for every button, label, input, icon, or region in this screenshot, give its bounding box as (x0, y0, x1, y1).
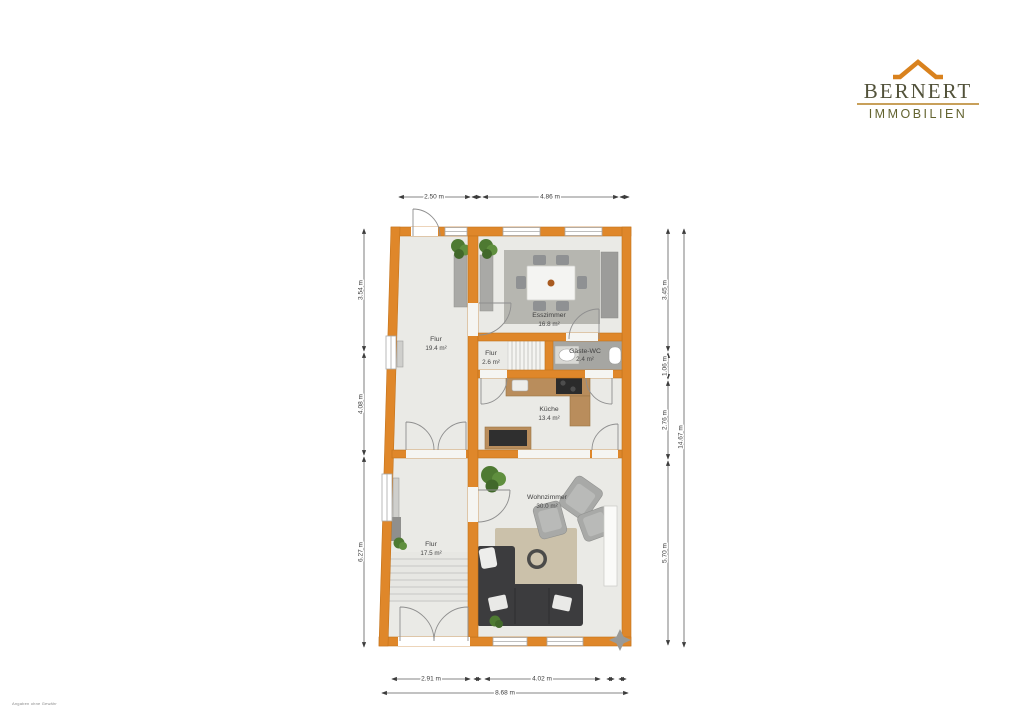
chair (556, 255, 569, 265)
burner (570, 386, 575, 391)
radiator (393, 478, 399, 518)
door-gap (585, 370, 613, 378)
radiator (397, 341, 403, 367)
dimension-label: 3.45 m (662, 280, 669, 300)
island-top (489, 430, 527, 446)
stairs-box (508, 341, 545, 371)
dimension-label: 3.54 m (358, 280, 365, 300)
room-area: 19.4 m² (425, 345, 446, 352)
room-name: Gäste-WC (569, 348, 601, 355)
dimension-label: 2.91 m (421, 676, 441, 683)
chair (556, 301, 569, 311)
chair (577, 276, 587, 289)
room-area: 17.5 m² (420, 550, 441, 557)
sideboard (601, 252, 618, 318)
room-name: Flur (425, 541, 437, 548)
dimension-label: 4.02 m (532, 676, 552, 683)
logo-roof-icon (855, 54, 981, 80)
dimension-label: 2.50 m (424, 194, 444, 201)
dimension-label: 5.70 m (662, 543, 669, 563)
room-name: Esszimmer (532, 312, 566, 319)
page: BERNERT IMMOBILIEN Angaben ohne Gewähr (0, 0, 1024, 724)
door-gap (566, 333, 598, 341)
room-name: Flur (430, 336, 442, 343)
room-name: Flur (485, 350, 497, 357)
room-area: 16.8 m² (538, 321, 559, 328)
dimension-label: 4.08 m (358, 394, 365, 414)
logo: BERNERT IMMOBILIEN (854, 54, 982, 121)
bench (604, 506, 617, 586)
door-gap (468, 303, 478, 336)
chair (533, 255, 546, 265)
dimension-label: 1.06 m (662, 356, 669, 376)
coffee-table-top (531, 553, 544, 566)
logo-underline (857, 103, 979, 105)
dimension-label: 14.67 m (678, 425, 685, 449)
wall-dining-south (478, 333, 622, 341)
double-door-gap (406, 450, 466, 458)
entry-door-gap (411, 227, 438, 236)
wall-interior-vertical (468, 236, 478, 637)
throw-blanket (478, 547, 497, 569)
dimension-label: 2.76 m (662, 410, 669, 430)
disclaimer-text: Angaben ohne Gewähr (12, 701, 57, 706)
room-name: Küche (539, 406, 558, 413)
logo-tagline: IMMOBILIEN (854, 108, 982, 121)
wall-right (622, 227, 631, 646)
door-gap (592, 450, 618, 458)
chair (533, 301, 546, 311)
logo-name: BERNERT (854, 80, 982, 102)
toilet (609, 347, 621, 364)
passage-opening (518, 450, 590, 458)
room-area: 2.4 m² (576, 356, 594, 363)
room-area: 2.6 m² (482, 359, 500, 366)
burner (560, 380, 565, 385)
dimension-label: 4.86 m (540, 194, 560, 201)
stairs-mid (508, 341, 545, 371)
chair (516, 276, 526, 289)
sink (512, 380, 528, 391)
room-area: 30.0 m² (536, 503, 557, 510)
room-name: Wohnzimmer (527, 494, 568, 501)
kitchen-counter (570, 396, 590, 426)
cabinet (454, 255, 467, 307)
room-area: 13.4 m² (538, 415, 559, 422)
door-gap (480, 370, 507, 378)
centerpiece (548, 280, 555, 287)
stairs-bottom (389, 552, 471, 602)
door-gap (468, 487, 478, 522)
cooktop (556, 378, 582, 394)
roof-shape (893, 62, 943, 77)
wall-wc-west (545, 341, 553, 371)
dimension-label: 6.27 m (358, 542, 365, 562)
stairs-box (389, 552, 471, 602)
dimension-label: 8.68 m (495, 690, 515, 697)
